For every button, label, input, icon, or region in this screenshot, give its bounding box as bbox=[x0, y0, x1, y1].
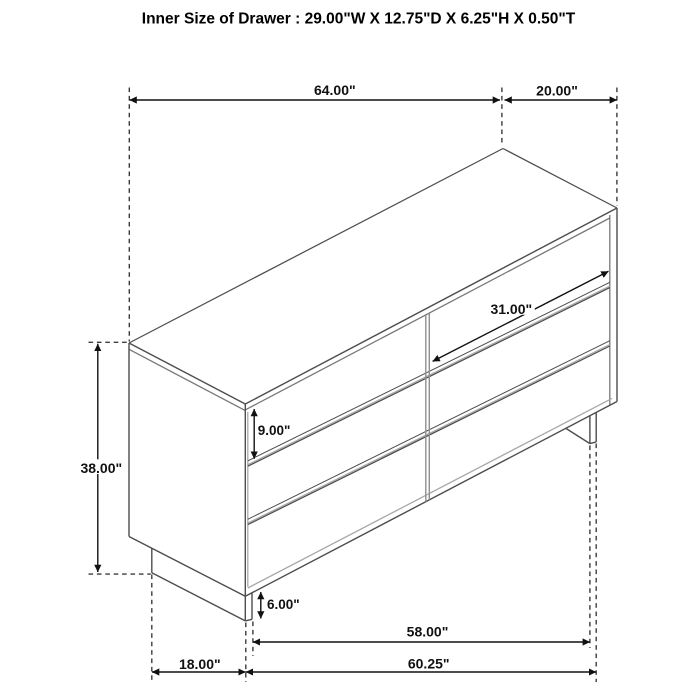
svg-text:9.00": 9.00" bbox=[258, 423, 291, 438]
svg-text:18.00": 18.00" bbox=[179, 656, 221, 672]
svg-text:60.25": 60.25" bbox=[408, 656, 450, 672]
svg-text:58.00": 58.00" bbox=[407, 624, 449, 640]
svg-text:64.00": 64.00" bbox=[314, 82, 356, 98]
svg-text:31.00": 31.00" bbox=[490, 301, 532, 317]
svg-text:Inner Size of Drawer : 29.00"W: Inner Size of Drawer : 29.00"W X 12.75"D… bbox=[142, 11, 576, 28]
svg-text:6.00": 6.00" bbox=[267, 597, 300, 612]
svg-text:20.00": 20.00" bbox=[536, 83, 578, 99]
svg-text:38.00": 38.00" bbox=[80, 460, 122, 476]
